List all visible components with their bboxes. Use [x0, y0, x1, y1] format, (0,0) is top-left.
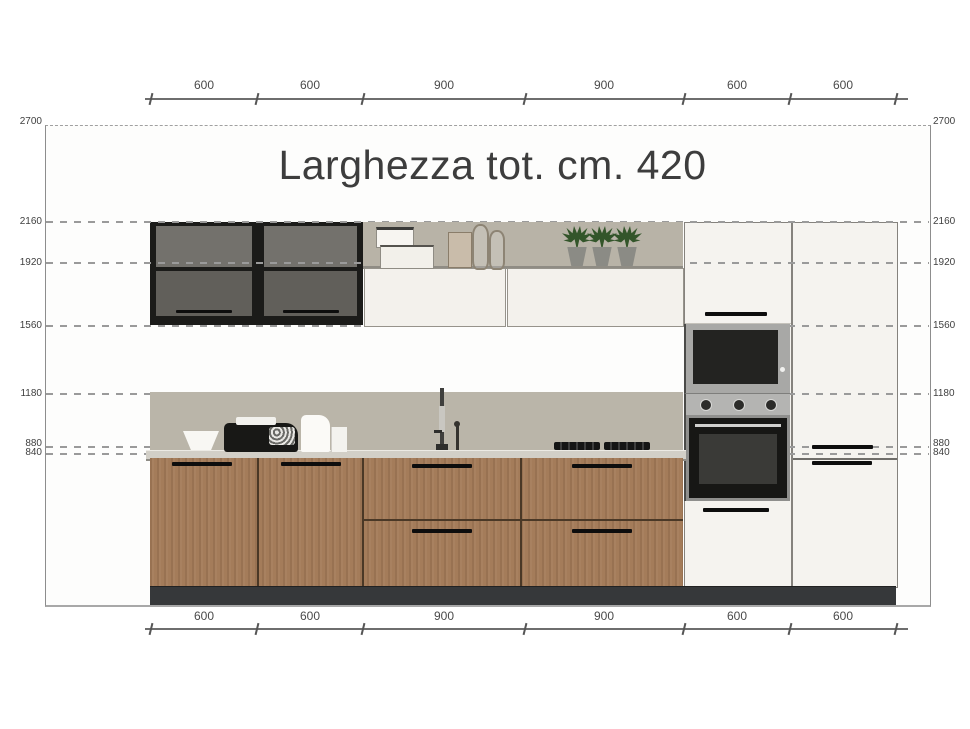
- faucet-body: [439, 406, 445, 432]
- left-height-label: 1920: [6, 258, 42, 268]
- decor-vase: [489, 230, 505, 270]
- left-height-label: 1180: [6, 389, 42, 399]
- kitchen-elevation-drawing: 600 600 900 900 600 600 Larghezza tot. c…: [0, 0, 970, 729]
- page-title: Larghezza tot. cm. 420: [240, 142, 745, 189]
- right-height-label: 840: [933, 448, 970, 458]
- soap-dispenser-top: [454, 421, 460, 427]
- right-height-label: 2160: [933, 217, 970, 227]
- oven-knob: [765, 399, 777, 411]
- left-height-label: 1560: [6, 321, 42, 331]
- decor-box: [380, 245, 434, 269]
- pitcher: [301, 415, 330, 452]
- cabinet-divider: [257, 458, 259, 586]
- appliance-stack: [684, 324, 790, 501]
- oven-knob: [733, 399, 745, 411]
- soap-dispenser: [456, 426, 459, 450]
- canister: [331, 427, 347, 452]
- decor-books: [448, 232, 472, 268]
- cabinet-divider: [520, 458, 522, 586]
- cabinet-handle: [283, 310, 339, 313]
- cabinet-handle: [172, 462, 232, 466]
- top-dim-label: 600: [300, 78, 320, 92]
- left-height-label: 840: [6, 448, 42, 458]
- top-dim-label: 900: [594, 78, 614, 92]
- wall-cabinet-door: [264, 226, 357, 267]
- cabinet-handle: [176, 310, 232, 313]
- base-cabinet-run: [150, 458, 683, 586]
- faucet-spout: [434, 430, 442, 433]
- left-height-label: 2160: [6, 217, 42, 227]
- shelf-flap-cabinet: [507, 268, 684, 327]
- cabinet-handle: [705, 312, 767, 316]
- tall-fridge-column: [792, 222, 898, 588]
- coffee-machine: [224, 423, 298, 452]
- oven-control-panel: [684, 393, 790, 415]
- microwave-button: [780, 367, 785, 372]
- bottom-dim-label: 600: [727, 609, 747, 623]
- oven-door: [689, 418, 787, 498]
- faucet-base: [436, 444, 448, 450]
- decor-vase: [472, 224, 489, 270]
- right-height-label: 2700: [933, 117, 970, 127]
- bottom-dimension-line: [145, 628, 908, 630]
- cabinet-handle: [703, 508, 769, 512]
- drawer-divider: [364, 519, 520, 521]
- oven-glass: [699, 434, 777, 484]
- microwave-screen: [693, 330, 778, 384]
- fridge-door-split: [793, 458, 897, 460]
- bottom-dim-label: 600: [194, 609, 214, 623]
- shelf-flap-cabinet: [364, 268, 506, 327]
- cabinet-divider: [362, 458, 364, 586]
- bottom-dim-label: 600: [833, 609, 853, 623]
- microwave: [684, 324, 790, 393]
- drawer-handle: [412, 464, 472, 468]
- hob-burners: [604, 442, 650, 450]
- wall-cabinet-dark-unit: [150, 222, 363, 325]
- coffee-machine-side: [269, 427, 295, 445]
- left-height-label: 2700: [6, 117, 42, 127]
- oven-handle: [695, 424, 781, 427]
- oven: [684, 415, 790, 501]
- oven-knob: [700, 399, 712, 411]
- top-dim-label: 600: [727, 78, 747, 92]
- tall-column-top-door: [685, 223, 791, 324]
- hob-burners: [554, 442, 600, 450]
- cabinet-handle: [812, 461, 872, 465]
- bottom-dim-label: 900: [594, 609, 614, 623]
- top-dim-label: 600: [194, 78, 214, 92]
- plinth: [150, 586, 896, 605]
- right-height-label: 1180: [933, 389, 970, 399]
- top-dimension-line: [145, 98, 908, 100]
- wall-cabinet-door: [156, 226, 252, 267]
- cabinet-handle: [281, 462, 341, 466]
- bottom-dim-label: 900: [434, 609, 454, 623]
- right-height-label: 1920: [933, 258, 970, 268]
- coffee-machine-lid: [236, 417, 276, 425]
- drawer-handle: [572, 529, 632, 533]
- drawer-handle: [572, 464, 632, 468]
- drawer-divider: [522, 519, 683, 521]
- top-dim-label: 900: [434, 78, 454, 92]
- drawer-handle: [412, 529, 472, 533]
- bottom-dim-label: 600: [300, 609, 320, 623]
- cabinet-handle: [812, 445, 873, 449]
- top-dim-label: 600: [833, 78, 853, 92]
- right-height-label: 1560: [933, 321, 970, 331]
